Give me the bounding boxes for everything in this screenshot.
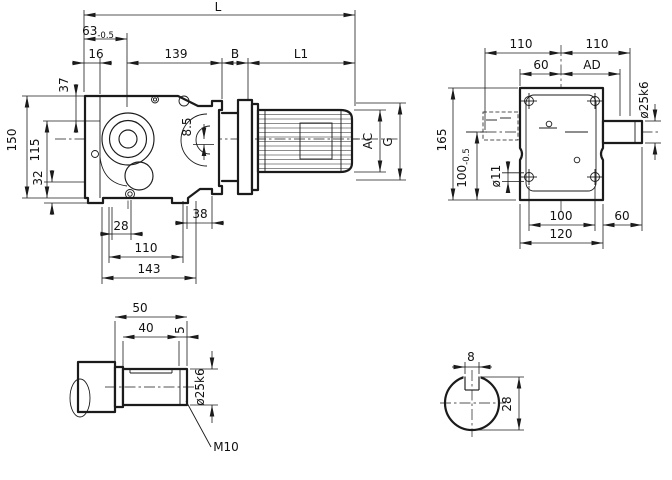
dim-28-label: 28 [113,219,128,233]
dim-60-top-label: 60 [533,58,548,72]
side-view: L 63-0.5 16 139 B L1 37 150 115 32 8.5 A… [5,0,406,284]
hidden-input-boss [483,112,518,140]
dim-110-label: 110 [135,241,158,255]
dim-150-label: 150 [5,129,19,152]
dim-5-label: 5 [173,326,187,334]
shaft-detail-view: 50 40 5 ø25k6 M10 [70,301,239,454]
gear-housing-outline [85,96,222,203]
key-section-dimensions [452,362,524,430]
dim-139-label: 139 [165,47,188,61]
dim-143-label: 143 [138,262,161,276]
dim-16-label: 16 [88,47,103,61]
dim-dia25k6-shaft-label: ø25k6 [193,368,207,405]
dim-120-label: 120 [550,227,573,241]
dim-M10-label: M10 [213,440,239,454]
motor-body [258,110,352,172]
output-shaft [603,121,642,143]
key-section-view: 8 28 [440,350,524,437]
dim-63-label: 63-0.5 [82,24,114,41]
dim-8.5-label: 8.5 [180,117,194,136]
dim-110-right-label: 110 [586,37,609,51]
dim-dia25k6-label: ø25k6 [637,81,651,118]
dim-60-bottom-label: 60 [614,209,629,223]
dim-37-label: 37 [57,77,71,92]
dim-40-label: 40 [138,321,153,335]
dim-AD-label: AD [583,58,600,72]
dim-32-label: 32 [31,170,45,185]
dim-110-left-label: 110 [510,37,533,51]
gearmotor-dimension-drawing: L 63-0.5 16 139 B L1 37 150 115 32 8.5 A… [0,0,672,480]
dim-50-label: 50 [132,301,147,315]
end-view: 110 110 60 AD 165 100-0.5 ø11 ø25k6 100 … [435,37,661,249]
adapter-flange [238,100,252,194]
dim-B-label: B [231,47,239,61]
dim-100-tol-label: 100-0.5 [455,148,472,188]
dim-115-label: 115 [28,139,42,162]
end-housing-outline [520,88,603,200]
dim-dia11-label: ø11 [489,165,503,188]
dim-G-label: G [381,137,395,146]
dim-L-label: L [215,0,222,14]
dim-165-label: 165 [435,129,449,152]
dim-AC-label: AC [361,133,375,149]
dim-L1-label: L1 [294,47,308,61]
dim-28-key-label: 28 [500,396,514,411]
dim-38-label: 38 [192,207,207,221]
dim-8-label: 8 [467,350,475,364]
dim-100-bottom-label: 100 [550,209,573,223]
